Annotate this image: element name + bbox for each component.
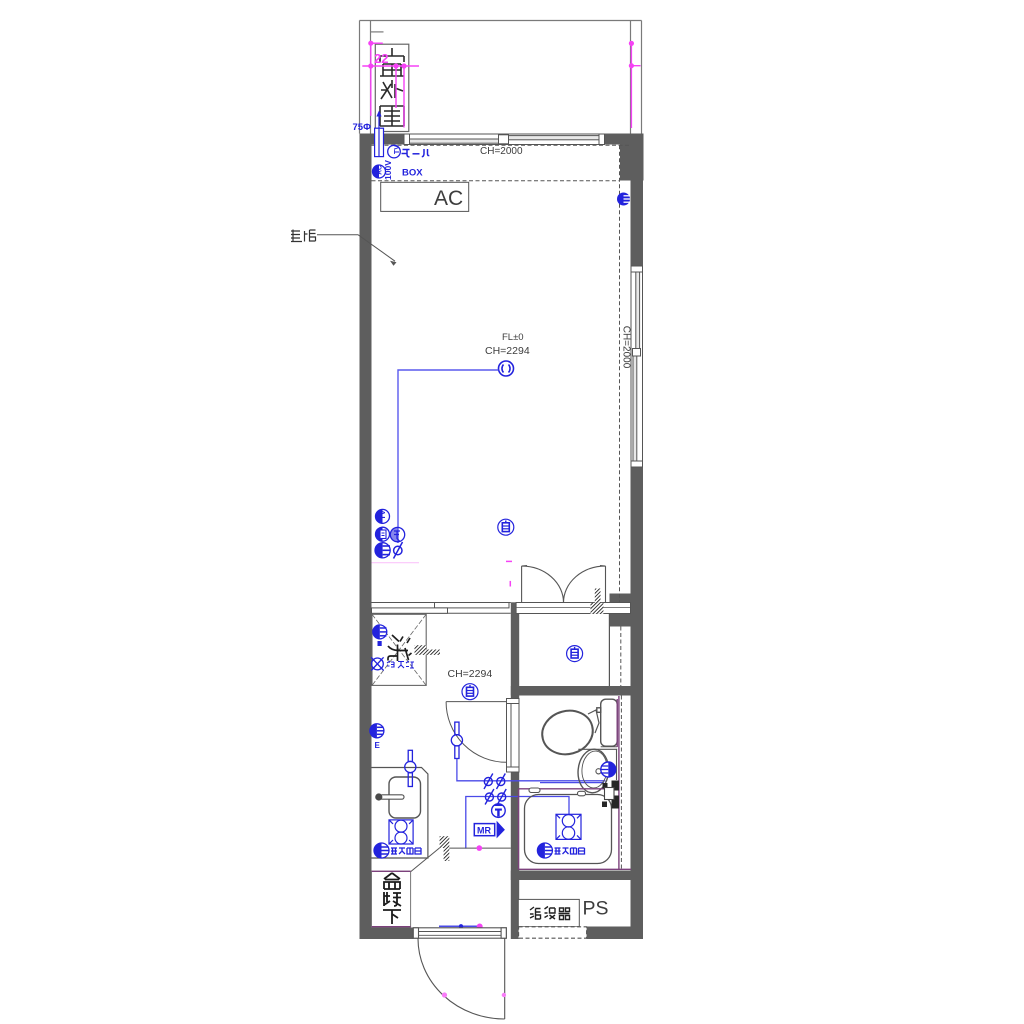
svg-text:CH=2294: CH=2294 xyxy=(448,668,493,680)
svg-text:E: E xyxy=(375,741,381,750)
svg-text:CH=2000: CH=2000 xyxy=(480,146,523,157)
svg-text:T: T xyxy=(495,808,501,819)
svg-text:100V: 100V xyxy=(383,160,393,180)
svg-text:MR: MR xyxy=(477,825,491,835)
svg-text:CH=2000: CH=2000 xyxy=(621,326,632,369)
svg-text:22: 22 xyxy=(374,51,388,66)
svg-text:FL±0: FL±0 xyxy=(502,332,524,343)
svg-text:TV: TV xyxy=(394,145,401,154)
svg-text:PS: PS xyxy=(583,898,609,920)
svg-text:AC: AC xyxy=(434,187,463,210)
svg-text:CH=2294: CH=2294 xyxy=(485,345,530,357)
svg-text:TV: TV xyxy=(378,510,387,520)
svg-text:75Φ: 75Φ xyxy=(353,122,372,133)
svg-text:BOX: BOX xyxy=(402,168,423,179)
